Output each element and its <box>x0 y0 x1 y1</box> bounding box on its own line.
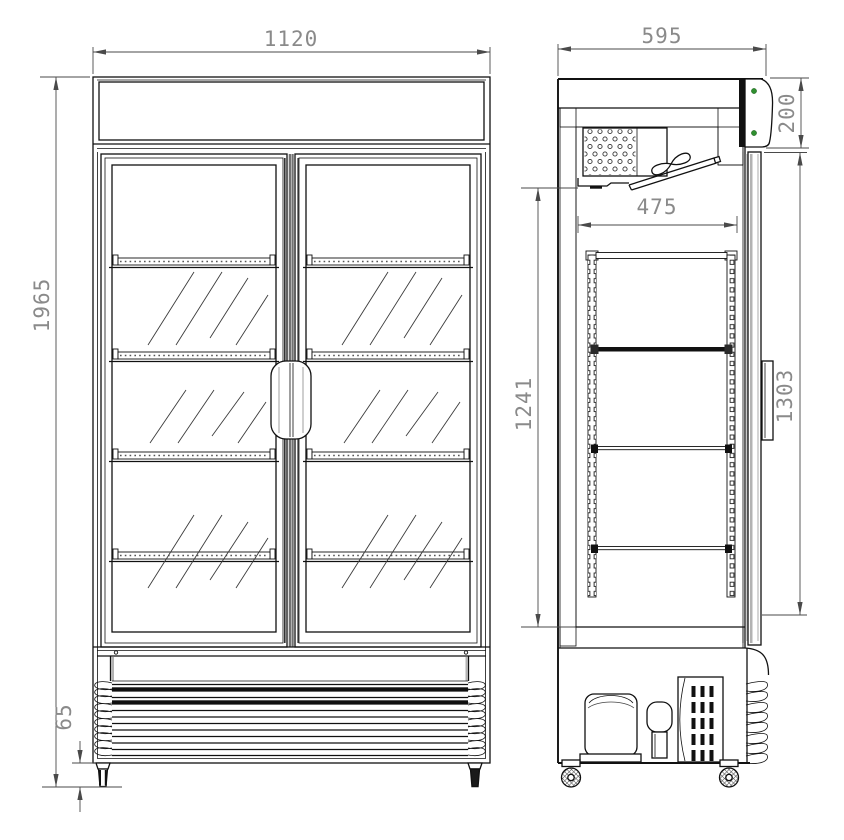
dim-side-depth: 595 <box>558 24 766 76</box>
left-glass-door[interactable] <box>101 154 287 647</box>
screw-icon <box>464 651 467 654</box>
side-door-handle[interactable] <box>762 361 773 440</box>
dim-caster-height: 65 <box>52 703 96 812</box>
side-header-panel <box>739 79 773 147</box>
indicator-dot <box>751 88 756 93</box>
dim-interior-height-label: 1241 <box>512 377 536 432</box>
dim-front-height-label: 1965 <box>30 278 54 333</box>
refrigerator-technical-drawing: 1120 1965 65 <box>0 0 844 840</box>
dim-caster-height-label: 65 <box>52 703 76 730</box>
front-right-caster <box>468 763 482 787</box>
drawing-sheet: 1120 1965 65 <box>0 0 844 840</box>
condenser <box>678 677 723 762</box>
dim-door-height-label: 1303 <box>773 369 797 424</box>
side-right-caster <box>720 760 739 787</box>
indicator-dot <box>751 130 756 135</box>
rear-louver <box>746 681 768 763</box>
evaporator-coil <box>585 130 636 175</box>
side-view: 595 200 475 1241 1303 <box>512 24 809 787</box>
dim-header-height-label: 200 <box>775 93 799 134</box>
compressor <box>580 694 641 762</box>
side-left-caster <box>562 760 581 787</box>
side-door <box>748 152 761 645</box>
door-handle[interactable] <box>271 361 311 439</box>
dim-front-width-label: 1120 <box>264 27 319 51</box>
dim-front-width: 1120 <box>93 27 490 74</box>
screw-icon <box>114 651 117 654</box>
front-view: 1120 1965 65 <box>30 27 490 812</box>
front-left-caster <box>96 763 110 787</box>
right-glass-door[interactable] <box>295 154 481 647</box>
dim-interior-depth-label: 475 <box>637 195 678 219</box>
dim-side-depth-label: 595 <box>642 24 683 48</box>
